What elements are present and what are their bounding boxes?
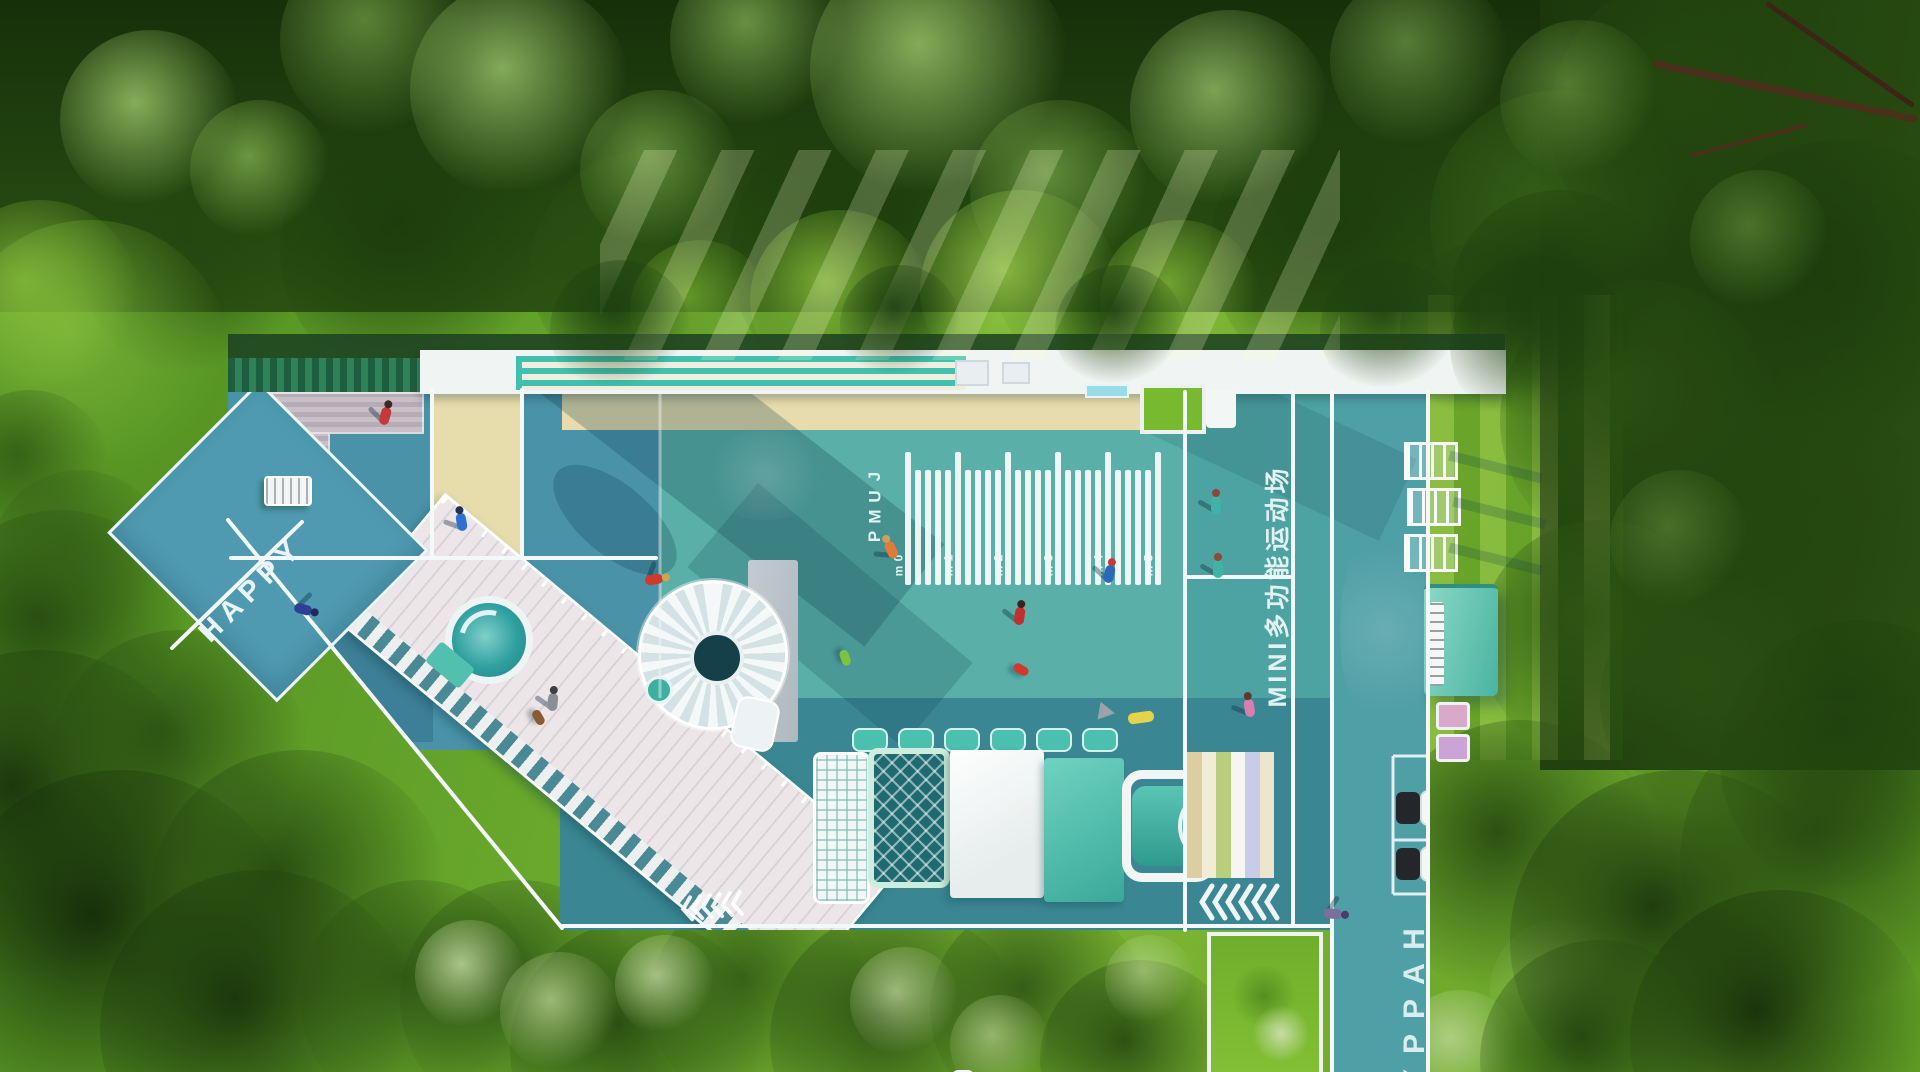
figure-dog	[523, 704, 552, 727]
figure-person	[1210, 489, 1222, 515]
figure-person	[292, 601, 320, 619]
figure-person	[1012, 599, 1028, 626]
figure-person	[643, 571, 671, 587]
aerial-playground-render: HAPPY JUMP 0m 1m 2m 3m 4m 5m MINI多功能运动场 …	[0, 0, 1920, 1072]
figure-person	[377, 399, 395, 427]
figures-layer	[0, 0, 1920, 1072]
figure-person	[1241, 691, 1257, 718]
figure-person	[453, 505, 469, 533]
figure-blob	[952, 1062, 964, 1072]
figure-person	[1101, 557, 1118, 585]
figure-toy	[830, 646, 859, 666]
figure-person	[1212, 553, 1224, 579]
figure-person	[1323, 907, 1350, 921]
figure-toy	[1007, 655, 1030, 684]
figure-person	[879, 533, 901, 562]
